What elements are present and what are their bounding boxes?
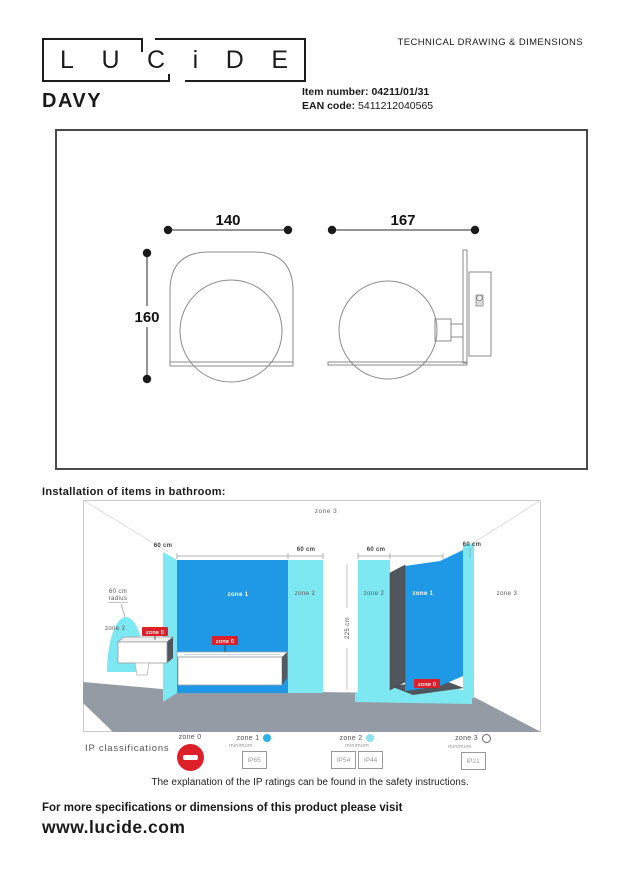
item-number-value: 04211/01/31	[371, 86, 429, 98]
lucide-logo: L U C i D E	[42, 38, 306, 82]
zone1-dot-icon	[263, 734, 271, 742]
logo-letter: U	[101, 48, 119, 73]
minimum-label: minimum	[345, 743, 369, 749]
svg-text:zone 0: zone 0	[418, 682, 436, 688]
technical-drawing: 140 160 167	[55, 129, 584, 466]
wall-bracket-foot	[328, 362, 467, 365]
globe-neck-collar	[451, 324, 463, 337]
room-height-label: 225 cm	[345, 617, 351, 639]
zone2-shower-strip	[358, 560, 390, 693]
zone2-basin-label: zone 2	[105, 626, 126, 632]
zone1-shower-wall	[405, 550, 463, 691]
page: L U C i D E TECHNICAL DRAWING & DIMENSIO…	[0, 0, 620, 877]
zone2-right-edge-strip	[463, 543, 474, 698]
lamp-front-body	[170, 252, 293, 366]
front-width-value: 140	[215, 212, 240, 229]
sixty-cm-label: 60 cm	[367, 547, 386, 553]
dim-dot	[164, 226, 172, 234]
mounting-box	[469, 272, 491, 356]
basin-top	[118, 637, 173, 642]
zone1-label: zone 1	[412, 591, 433, 597]
logo-letter: C	[147, 48, 165, 73]
legend-zone1: zone 1 minimum IP65	[229, 734, 279, 769]
front-height-value: 160	[134, 309, 159, 326]
ip-rating-box: IP44	[358, 751, 383, 769]
zone3-ceiling-label: zone 3	[315, 508, 338, 515]
basin-front	[118, 642, 167, 663]
dim-dot	[328, 226, 336, 234]
footer-text: For more specifications or dimensions of…	[42, 802, 402, 814]
logo-letter: D	[226, 48, 244, 73]
zone0-shower-badge: zone 0	[414, 679, 440, 688]
logo-letter: i	[193, 48, 199, 73]
shower-panel	[390, 565, 405, 690]
radius-label-line1: 60 cm	[109, 589, 127, 595]
ip-ratings-note: The explanation of the IP ratings can be…	[0, 777, 620, 788]
sixty-cm-label: 60 cm	[463, 542, 482, 548]
legend-zone0-label: zone 0	[179, 734, 202, 741]
legend-zone0: zone 0	[164, 734, 216, 771]
bathroom-section-heading: Installation of items in bathroom:	[42, 486, 226, 498]
lamp-side-globe	[339, 281, 437, 379]
minimum-label: minimum	[448, 744, 472, 750]
wall-plate	[463, 250, 467, 363]
ean-value: 5411212040565	[358, 100, 433, 112]
svg-text:zone 0: zone 0	[216, 639, 234, 645]
sixty-cm-label: 60 cm	[154, 543, 173, 549]
zone1-label: zone 1	[227, 592, 248, 598]
ean-line: EAN code: 5411212040565	[302, 99, 433, 113]
ip-rating-box: IP54	[331, 751, 356, 769]
minimum-label: minimum	[229, 743, 253, 749]
no-entry-bar	[183, 755, 198, 760]
logo-border-gap	[170, 80, 185, 82]
document-type-title: TECHNICAL DRAWING & DIMENSIONS	[398, 37, 583, 48]
zone2-label: zone 2	[295, 591, 316, 597]
logo-border-tick	[141, 38, 143, 52]
ip-rating-box: IP65	[242, 751, 267, 769]
side-depth-value: 167	[390, 212, 415, 229]
bathroom-zones-diagram: zone 3 60 cm 60 cm 225 cm 60 cm 60 cm zo…	[83, 500, 541, 732]
zone2-dot-icon	[366, 734, 374, 742]
dim-dot	[284, 226, 292, 234]
item-number-label: Item number:	[302, 86, 369, 98]
zone3-wall-label: zone 3	[497, 591, 518, 597]
website-url: www.lucide.com	[42, 817, 185, 838]
legend-zone3-label: zone 3	[455, 735, 478, 742]
sixty-cm-label: 60 cm	[297, 547, 316, 553]
logo-border-gap	[143, 38, 155, 40]
zone3-ring-icon	[482, 734, 491, 743]
dim-dot	[143, 375, 151, 383]
logo-letter: E	[271, 48, 288, 73]
dim-dot	[143, 249, 151, 257]
logo-border-tick	[168, 74, 170, 82]
legend-zone3: zone 3 minimum IP21	[448, 734, 498, 770]
legend-zone2: zone 2 minimum IP54 IP44	[322, 734, 392, 769]
legend-zone2-label: zone 2	[340, 735, 363, 742]
product-name: DAVY	[42, 90, 102, 113]
zone2-label: zone 2	[364, 591, 385, 597]
zone2-bathtub-strip	[288, 560, 323, 693]
no-entry-icon	[177, 744, 204, 771]
ip-classifications-title: IP classifications	[85, 743, 169, 754]
svg-text:zone 0: zone 0	[146, 630, 164, 636]
ean-label: EAN code:	[302, 100, 355, 112]
logo-letter: L	[60, 48, 74, 73]
lamp-front-globe	[180, 280, 282, 382]
basin-pedestal	[135, 663, 149, 675]
ip-rating-box: IP21	[461, 752, 486, 770]
screw-head	[477, 295, 483, 301]
item-number-line: Item number: 04211/01/31	[302, 85, 433, 99]
radius-label-line2: radius	[109, 596, 128, 602]
dim-dot	[471, 226, 479, 234]
legend-zone1-label: zone 1	[237, 735, 260, 742]
bathtub-front	[178, 657, 282, 685]
product-identifiers: Item number: 04211/01/31 EAN code: 54112…	[302, 85, 433, 113]
